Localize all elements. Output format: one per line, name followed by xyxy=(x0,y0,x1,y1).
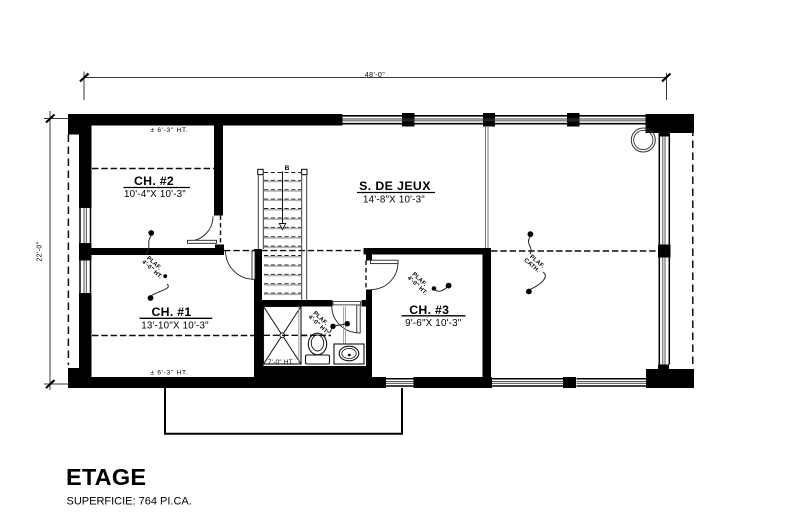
svg-text:48'-0": 48'-0" xyxy=(365,72,385,79)
svg-text:B: B xyxy=(285,165,290,172)
svg-text:CH. #3: CH. #3 xyxy=(409,303,449,317)
svg-text:CH. #1: CH. #1 xyxy=(151,305,191,319)
svg-text:S. DE JEUX: S. DE JEUX xyxy=(359,179,431,193)
svg-text:ETAGE: ETAGE xyxy=(66,464,146,490)
svg-text:± 6'-3" HT.: ± 6'-3" HT. xyxy=(150,127,188,134)
svg-text:7'-0" HT.: 7'-0" HT. xyxy=(268,359,294,366)
svg-text:14'-8"X 10'-3": 14'-8"X 10'-3" xyxy=(363,195,425,206)
svg-text:10'-4"X 10'-3": 10'-4"X 10'-3" xyxy=(124,189,186,200)
svg-text:SUPERFICIE: 764 PI.CA.: SUPERFICIE: 764 PI.CA. xyxy=(67,496,192,508)
svg-text:± 6'-3" HT.: ± 6'-3" HT. xyxy=(150,370,188,377)
svg-text:9'-6"X 10'-3": 9'-6"X 10'-3" xyxy=(405,318,462,329)
svg-text:CH. #2: CH. #2 xyxy=(134,174,174,188)
svg-text:13'-10"X 10'-3": 13'-10"X 10'-3" xyxy=(141,320,209,331)
svg-text:22'-0": 22'-0" xyxy=(37,241,44,261)
